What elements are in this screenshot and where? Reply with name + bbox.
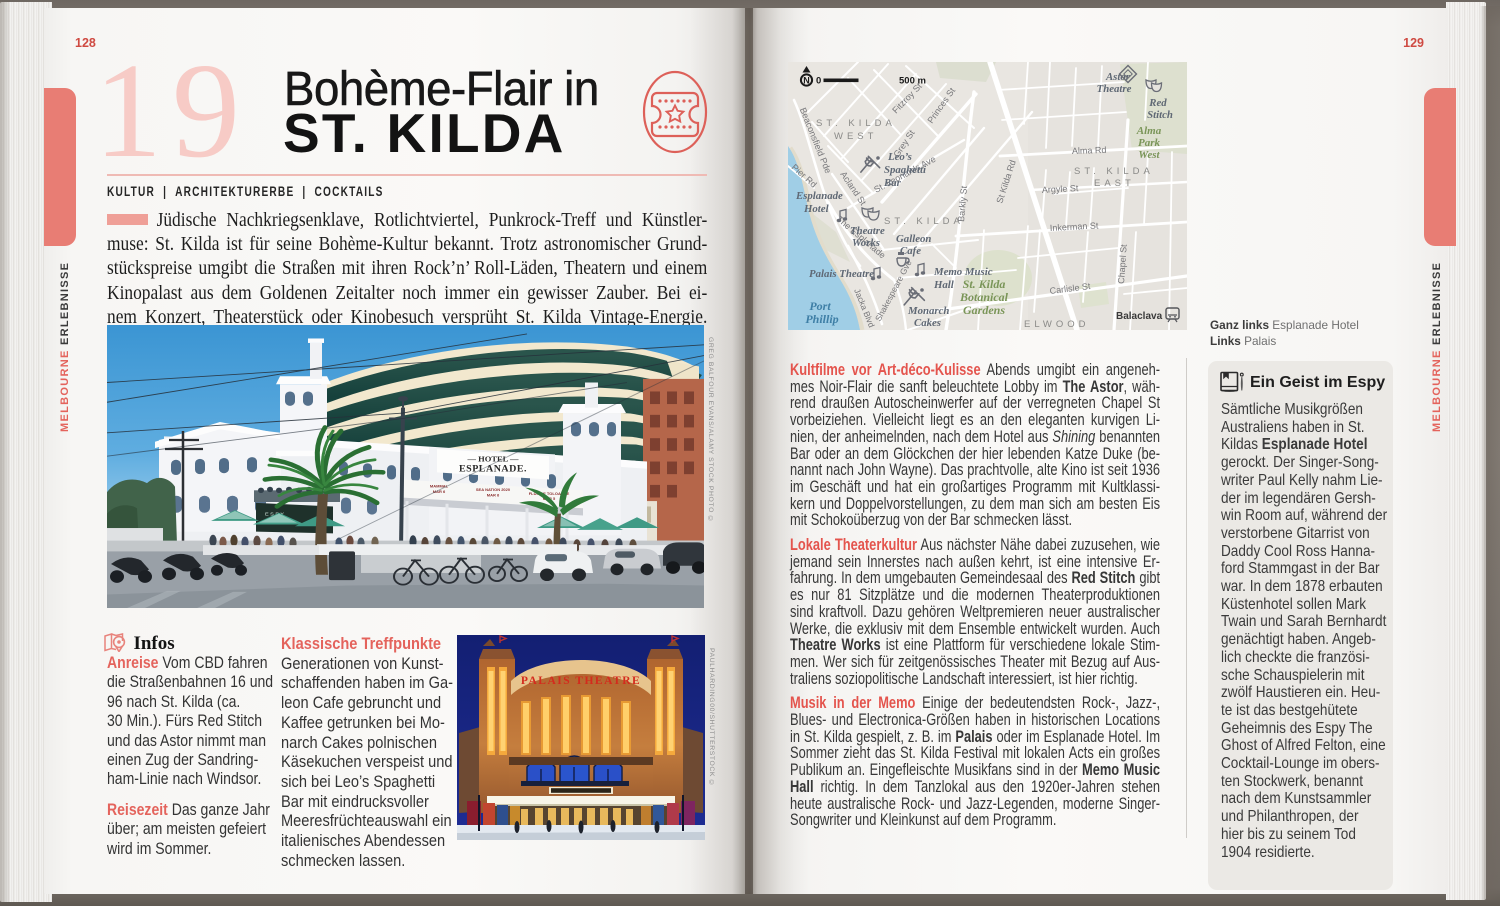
svg-text:Stitch: Stitch: [1147, 109, 1173, 121]
svg-text:N: N: [803, 75, 810, 85]
svg-text:ESPLANADE.: ESPLANADE.: [459, 465, 527, 474]
svg-text:ELWOOD: ELWOOD: [1024, 319, 1090, 330]
svg-text:Gardens: Gardens: [963, 303, 1005, 317]
svg-text:Galleon: Galleon: [896, 233, 931, 245]
svg-text:Works: Works: [852, 237, 880, 249]
svg-text:West: West: [1138, 149, 1160, 161]
svg-text:Bar: Bar: [883, 177, 902, 189]
svg-text:MAR 6: MAR 6: [487, 494, 499, 498]
svg-text:Hotel: Hotel: [803, 203, 829, 215]
svg-text:Hall: Hall: [933, 279, 954, 291]
svg-text:0: 0: [816, 76, 821, 87]
svg-text:Cakes: Cakes: [914, 317, 941, 329]
svg-text:SEA NATION 2020: SEA NATION 2020: [476, 488, 510, 492]
svg-text:Red: Red: [1148, 97, 1167, 109]
svg-text:Park: Park: [1138, 137, 1161, 149]
svg-text:Monarch: Monarch: [907, 305, 949, 317]
svg-text:Theatre: Theatre: [850, 225, 885, 237]
svg-text:ST. KILDA: ST. KILDA: [884, 216, 964, 227]
svg-text:Theatre: Theatre: [1097, 83, 1132, 95]
svg-text:PALAIS THEATRE: PALAIS THEATRE: [521, 675, 641, 687]
svg-text:— HOTEL —: — HOTEL —: [466, 455, 519, 464]
svg-text:EAST: EAST: [1094, 178, 1135, 189]
svg-text:ST. KILDA: ST. KILDA: [1074, 166, 1154, 177]
svg-text:Memo Music: Memo Music: [933, 266, 993, 278]
svg-text:Esplanade: Esplanade: [795, 190, 843, 202]
svg-text:Cafe: Cafe: [900, 245, 921, 257]
svg-text:St. Kilda: St. Kilda: [963, 277, 1006, 291]
svg-text:Alma: Alma: [1136, 125, 1162, 137]
svg-text:WEST: WEST: [834, 131, 877, 142]
svg-text:Balaclava: Balaclava: [1116, 311, 1163, 322]
svg-text:Phillip: Phillip: [805, 312, 838, 326]
svg-text:Botanical: Botanical: [959, 290, 1009, 304]
svg-text:Alma Rd: Alma Rd: [1072, 145, 1107, 156]
svg-text:Palais Theatre: Palais Theatre: [809, 268, 874, 280]
svg-text:ST. KILDA: ST. KILDA: [816, 118, 896, 129]
svg-text:Leo’s: Leo’s: [887, 151, 912, 163]
svg-text:Port: Port: [809, 299, 831, 313]
svg-text:Argyle St: Argyle St: [1042, 183, 1079, 195]
svg-text:Spaghetti: Spaghetti: [884, 164, 926, 176]
